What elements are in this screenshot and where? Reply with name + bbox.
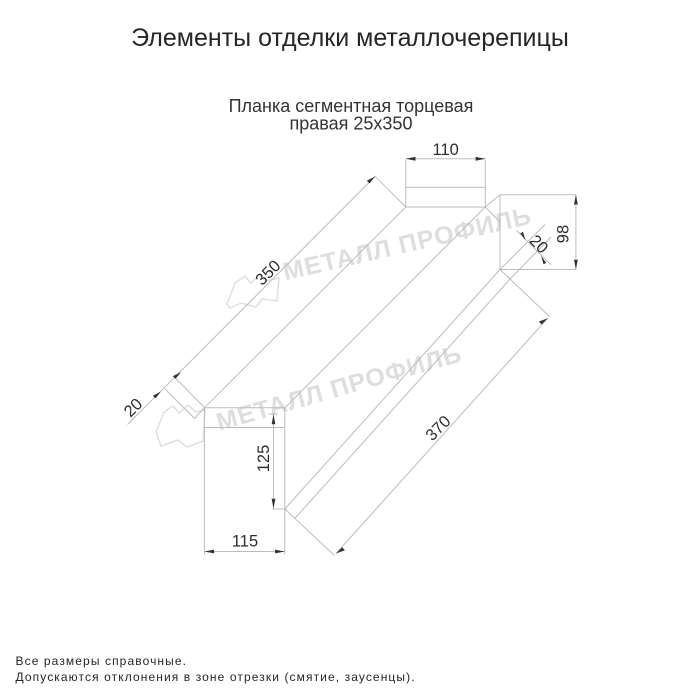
svg-text:350: 350	[252, 257, 284, 289]
svg-text:98: 98	[555, 225, 573, 243]
svg-text:370: 370	[422, 412, 454, 444]
svg-text:125: 125	[255, 445, 273, 473]
svg-text:20: 20	[526, 232, 552, 258]
svg-text:Все размеры справочные.: Все размеры справочные.	[16, 654, 188, 668]
svg-text:20: 20	[121, 395, 147, 421]
svg-text:Элементы отделки металлочерепи: Элементы отделки металлочерепицы	[131, 24, 569, 52]
svg-text:115: 115	[232, 533, 258, 551]
svg-text:правая 25х350: правая 25х350	[290, 114, 413, 134]
svg-text:МЕТАЛЛ ПРОФИЛЬ: МЕТАЛЛ ПРОФИЛЬ	[213, 340, 465, 437]
svg-text:110: 110	[432, 141, 458, 159]
svg-text:Допускаются отклонения в зоне: Допускаются отклонения в зоне отрезки (с…	[16, 670, 416, 684]
